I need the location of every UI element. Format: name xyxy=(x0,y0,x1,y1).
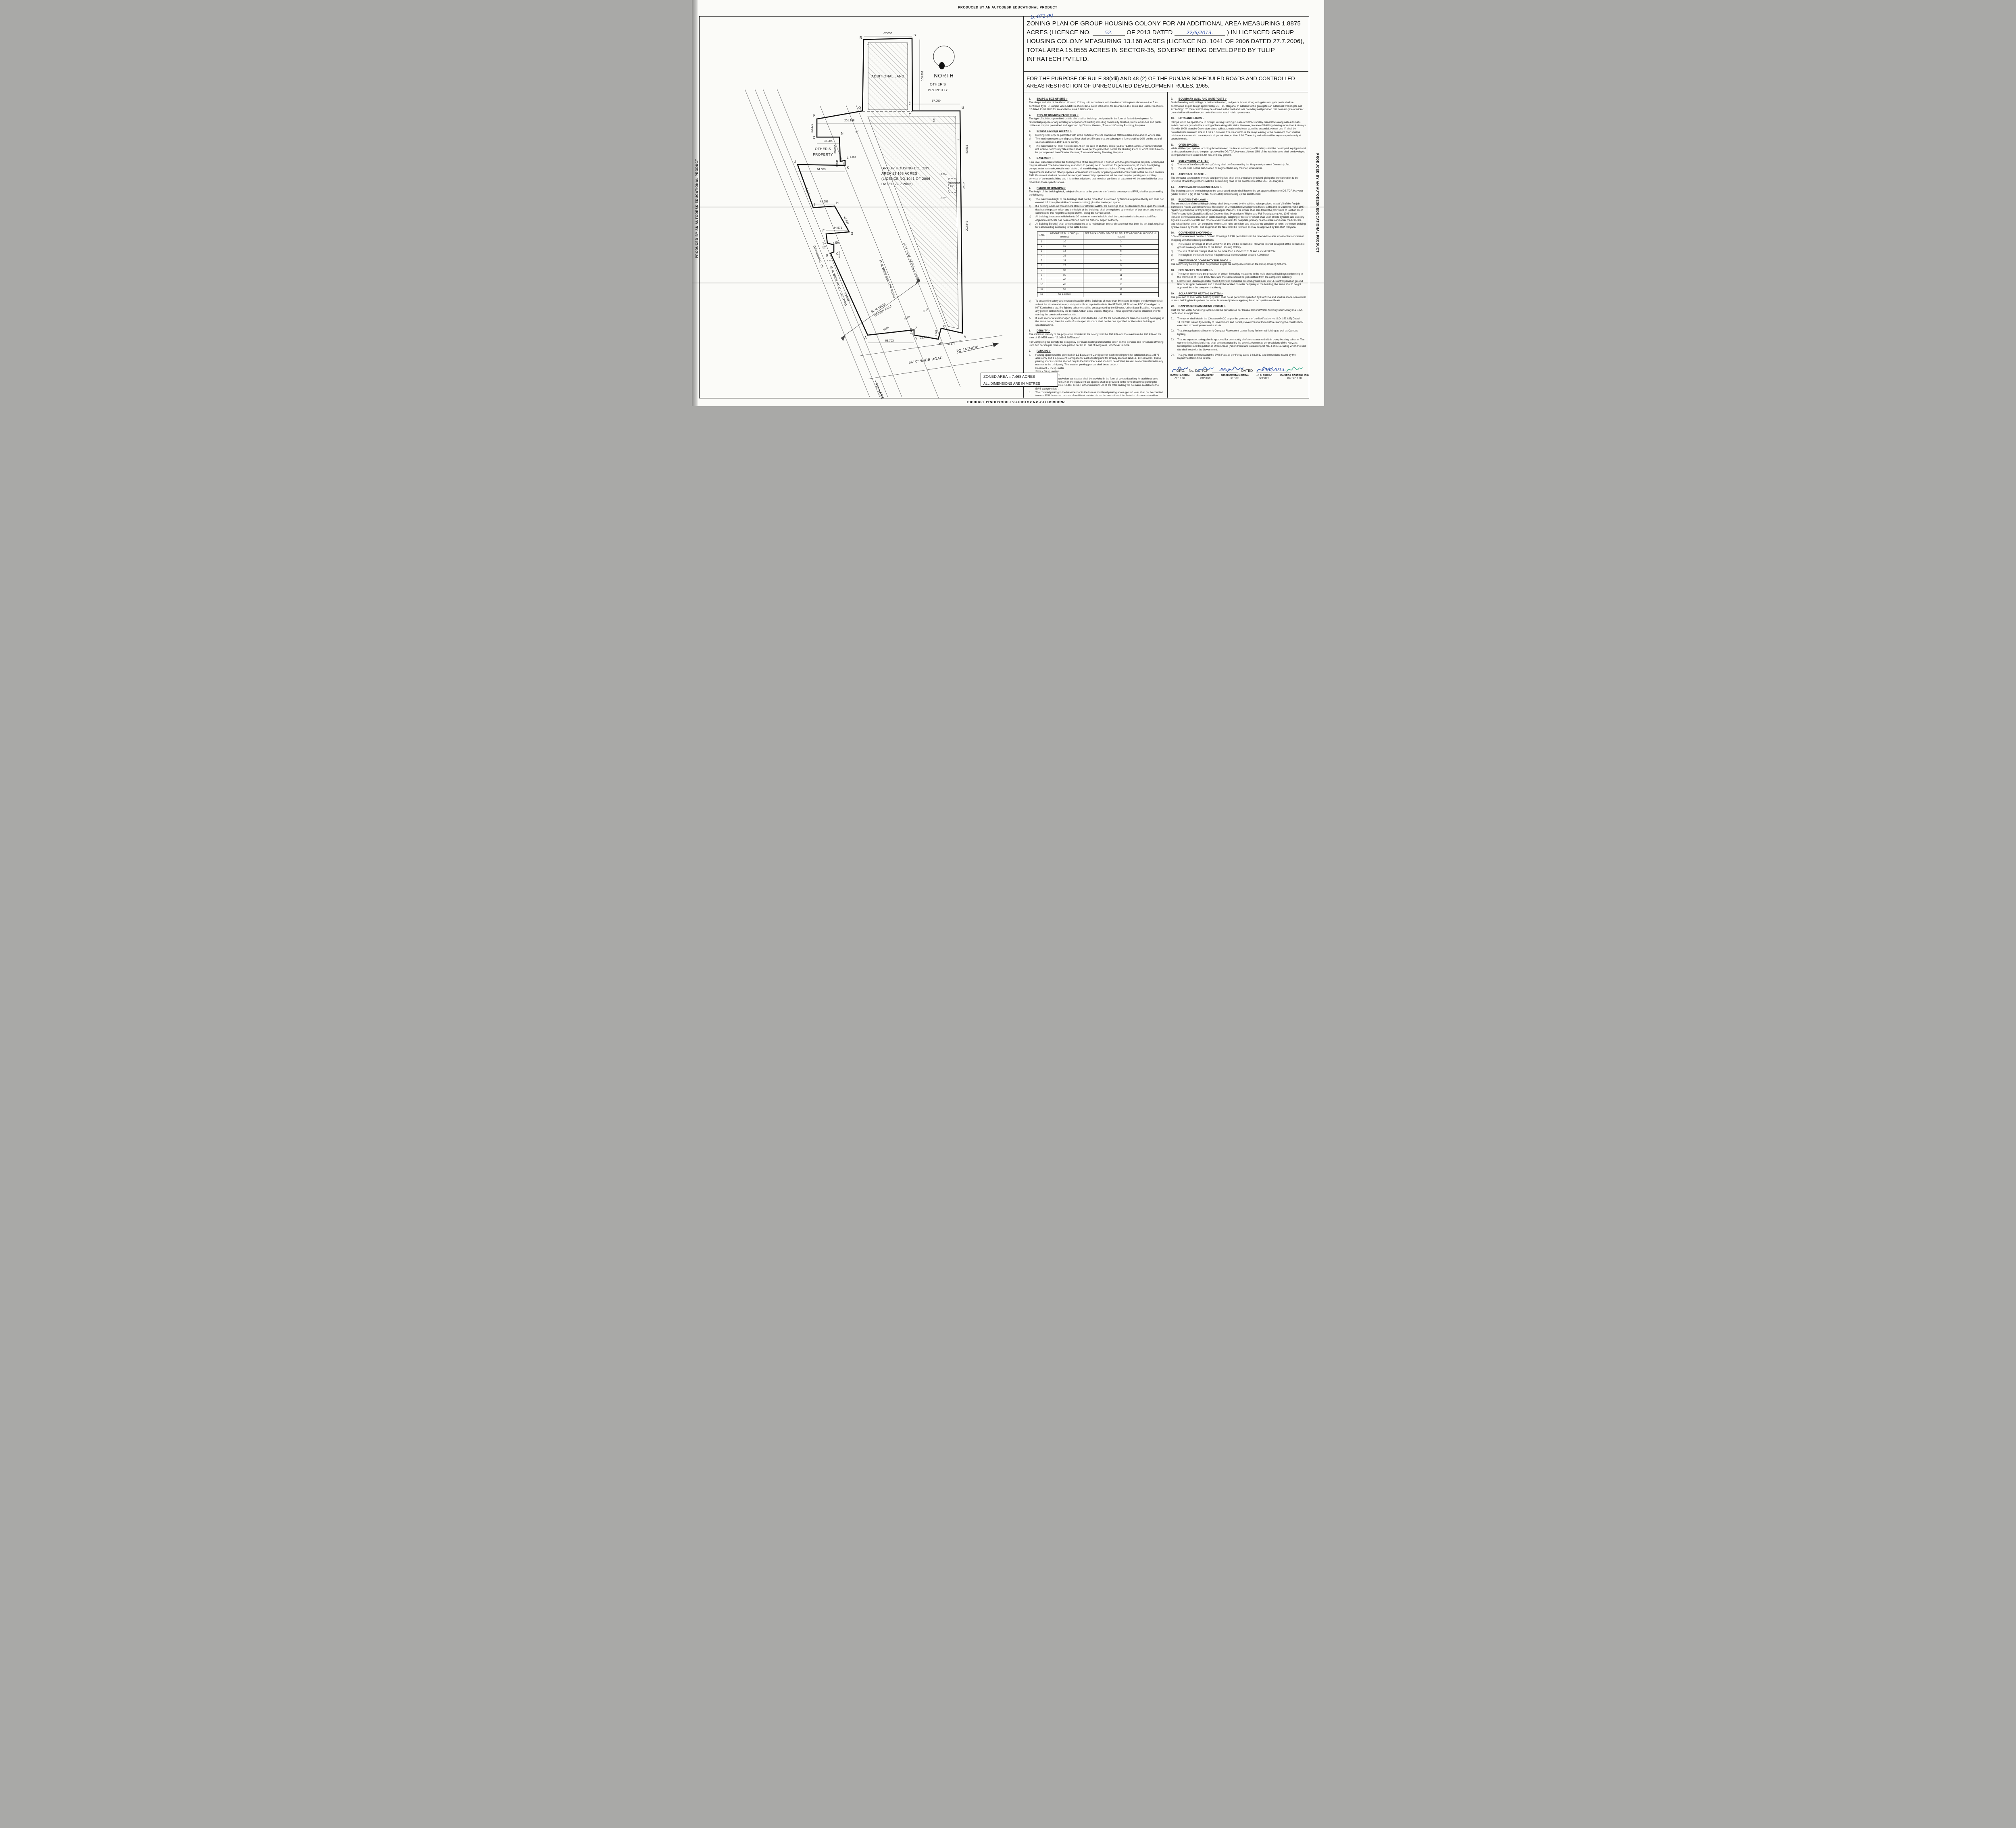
svg-text:Y: Y xyxy=(915,337,918,340)
clause-item-text: If a building abuts on two or more stree… xyxy=(1035,205,1164,215)
clause-heading: 14.APPROVAL OF BUILDING PLANS :- xyxy=(1171,186,1306,189)
svg-text:O: O xyxy=(813,136,815,140)
autodesk-banner-left: PRODUCED BY AN AUTODESK EDUCATIONAL PROD… xyxy=(695,159,699,258)
table-cell: 6 xyxy=(1083,249,1159,254)
table-cell: 21 xyxy=(1046,254,1083,259)
dim-3c: 3.353 xyxy=(827,260,833,262)
table-row: 94012 xyxy=(1037,278,1159,283)
table-row: 6279 xyxy=(1037,264,1159,269)
signature-block: (SUNITA SETHI)DTP (HQ) xyxy=(1196,365,1214,380)
clause-heading: 7.PARKING :- xyxy=(1029,350,1164,353)
clause-heading: 2.TYPE OF BUILDING PERMITTED :- xyxy=(1029,114,1164,117)
additional-land-label: ADDITIONAL LAND xyxy=(871,74,904,78)
clause-number: 5. xyxy=(1029,187,1037,190)
clause-section: 19.SOLAR WATER HEATING SYSTEM :-The prov… xyxy=(1171,292,1306,303)
clause-item: a)Building shall only be permitted with … xyxy=(1029,134,1164,137)
clause-title: RAIN WATER HARVESTING SYSTEM :- xyxy=(1179,305,1226,308)
table-cell: 55 & above xyxy=(1046,292,1083,297)
licence-date-blank: 22/6/2013. xyxy=(1175,29,1225,36)
road-66-label: 66'-0" WIDE ROAD xyxy=(908,356,943,365)
table-cell: 11 xyxy=(1037,288,1046,292)
dim-41: 41.693 xyxy=(820,200,829,203)
clause-section: 22.That the applicant shall use only Com… xyxy=(1171,329,1306,336)
clause-paragraph: The vehicular approach to the site and p… xyxy=(1171,177,1306,183)
svg-text:F: F xyxy=(823,229,825,233)
clause-item-label: a) xyxy=(1029,198,1035,205)
table-row: 115014 xyxy=(1037,288,1159,292)
clause-item-label: a) xyxy=(1171,163,1177,167)
clause-item: 22.That the applicant shall use only Com… xyxy=(1171,329,1306,336)
clause-section: 5.HEIGHT OF BUILDING :-The height of the… xyxy=(1029,187,1164,327)
clause-heading: 1.SHAPE & SIZE OF SITE :- xyxy=(1029,98,1164,101)
clause-title: LIFTS AND RAMPS :- xyxy=(1179,117,1204,120)
clause-item-text: The size of Kiosks / shops shall not be … xyxy=(1177,250,1306,253)
title-separator xyxy=(1023,71,1308,72)
clause-item: b)Electric Sub Station/generator room if… xyxy=(1171,280,1306,290)
dim-6b: 6.0 xyxy=(909,102,911,105)
table-row: 1255 & above16 xyxy=(1037,292,1159,297)
clause-heading: 16.CONVENIENT SHOPPING :- xyxy=(1171,231,1306,235)
clause-number: 1. xyxy=(1029,98,1037,101)
clause-item: b)The maximum coverage of ground floor s… xyxy=(1029,138,1164,144)
svg-text:T: T xyxy=(909,113,911,117)
table-cell: 2 xyxy=(1037,244,1046,249)
road-lines xyxy=(745,89,1002,399)
clause-title: SOLAR WATER HEATING SYSTEM :- xyxy=(1179,292,1223,295)
clause-paragraph: That the rain water harvesting system sh… xyxy=(1171,309,1306,316)
clause-number: 7. xyxy=(1029,350,1037,353)
clause-item-label: b) xyxy=(1171,167,1177,170)
clause-item-label: d) xyxy=(1029,223,1035,229)
signature-icon xyxy=(1256,365,1273,374)
table-cell: 30 xyxy=(1046,269,1083,273)
dim-50-00: 50.00 xyxy=(883,327,889,331)
dim-36: 36.880 xyxy=(834,145,837,154)
clause-title: BUILDING BYE- LAWS :- xyxy=(1179,198,1208,201)
clause-title: DENSITY :- xyxy=(1037,329,1050,332)
clause-item: 21.The owner shall obtain the Clearance/… xyxy=(1171,317,1306,327)
table-header-row: S.No.HEIGHT OF BUILDING (in meters)SET B… xyxy=(1037,232,1159,240)
table-cell: 11 xyxy=(1083,273,1159,278)
clause-item-text: The covered parking in the basement or i… xyxy=(1035,391,1164,396)
autodesk-banner-bottom: PRODUCED BY AN AUTODESK EDUCATIONAL PROD… xyxy=(966,400,1065,404)
table-row: 73010 xyxy=(1037,269,1159,273)
sector-road-label: 45 M WIDE SECTOR ROAD xyxy=(878,259,896,298)
dim-34: 34.976 xyxy=(833,227,842,229)
table-cell: 50 xyxy=(1046,288,1083,292)
clause-heading: 5.HEIGHT OF BUILDING :- xyxy=(1029,187,1164,190)
licence-no-blank: 52. xyxy=(1093,29,1125,36)
clause-title: FIRE SAFETY MEASURES :- xyxy=(1179,269,1213,272)
clause-section: 9.BOUNDARY WALL AND GATE POSTS :-Such Bo… xyxy=(1171,98,1306,115)
dim-38: 38.687 xyxy=(920,336,929,340)
others-property-top-1: OTHER'S xyxy=(930,82,946,86)
table-cell: 12 xyxy=(1037,292,1046,297)
clause-item: e)To ensure fire safety and structural s… xyxy=(1029,300,1164,316)
table-cell: 4 xyxy=(1037,254,1046,259)
table-cell: 9 xyxy=(1037,278,1046,283)
clause-item-label: b) xyxy=(1171,250,1177,253)
to-narela-label: TO NARELA xyxy=(874,383,887,399)
clauses-right: 9.BOUNDARY WALL AND GATE POSTS :-Such Bo… xyxy=(1171,95,1306,396)
others-property-left-2: PROPERTY xyxy=(813,152,833,156)
dim-6d: 6.0 xyxy=(958,139,961,141)
dim-6f: 6.0 xyxy=(855,129,859,133)
clause-title: Ground Coverage and FAR :- xyxy=(1037,130,1072,133)
clause-number: 9. xyxy=(1171,98,1179,101)
svg-text:G: G xyxy=(851,232,853,236)
autodesk-banner-top: PRODUCED BY AN AUTODESK EDUCATIONAL PROD… xyxy=(958,6,1057,9)
svg-text:Z: Z xyxy=(915,326,917,330)
dim-108: 108.891 xyxy=(921,71,924,81)
clause-section: 6.DENSITY :-The minimum density of the p… xyxy=(1029,329,1164,347)
dim-67-2: 67.050 xyxy=(932,100,941,102)
clause-section: 23.That no separate zoning plan is appro… xyxy=(1171,338,1306,352)
clause-paragraph: While all the open spaces including thos… xyxy=(1171,147,1306,157)
additional-land-small-1: ADDITIONAL xyxy=(949,182,961,185)
svg-text:I: I xyxy=(814,203,815,206)
table-cell: 15 xyxy=(1046,244,1083,249)
clause-section: 20.RAIN WATER HARVESTING SYSTEM :-That t… xyxy=(1171,305,1306,315)
table-cell: 14 xyxy=(1083,288,1159,292)
dim-201: 201.168 xyxy=(844,119,854,122)
dim-202: 202.845 xyxy=(966,221,968,231)
clause-title: SHAPE & SIZE OF SITE :- xyxy=(1037,98,1067,100)
clause-section: 12SUB DIVISION OF SITE :-a)The site of t… xyxy=(1171,160,1306,171)
clause-item: b)The size of Kiosks / shops shall not b… xyxy=(1171,250,1306,253)
table-cell: 12 xyxy=(1083,278,1159,283)
table-cell: 7 xyxy=(1037,269,1046,273)
clause-heading: 12SUB DIVISION OF SITE :- xyxy=(1171,160,1306,163)
table-cell: 8 xyxy=(1037,273,1046,278)
clause-number: 2. xyxy=(1029,114,1037,117)
subtitle-separator xyxy=(1023,92,1308,92)
signature-icon xyxy=(1196,365,1214,374)
licence-date-value: 22/6/2013. xyxy=(1186,30,1213,35)
clause-item-text: Electric Sub Station/generator room if p… xyxy=(1177,280,1306,290)
clause-item-label: a) xyxy=(1171,273,1177,279)
others-property-top-2: PROPERTY xyxy=(928,88,948,92)
dim-61: 61.163 xyxy=(804,186,810,196)
clause-number: 13. xyxy=(1171,173,1179,176)
svg-text:H: H xyxy=(836,201,839,205)
table-cell: 6 xyxy=(1037,264,1046,269)
clause-title: APPROVAL OF BUILDING PLANS :- xyxy=(1179,186,1222,189)
clause-paragraph: The type of buildings permitted on this … xyxy=(1029,117,1164,127)
clause-heading: 9.BOUNDARY WALL AND GATE POSTS :- xyxy=(1171,98,1306,101)
clause-section: 16.CONVENIENT SHOPPING :-0.5% of the tot… xyxy=(1171,231,1306,257)
clause-number: 3. xyxy=(1029,130,1037,133)
clause-item: c)The maximum FAR shall not exceed 175 o… xyxy=(1029,145,1164,155)
clause-section: 18.FIRE SAFETY MEASURES :-a)The owner wi… xyxy=(1171,269,1306,290)
clause-section: 3.Ground Coverage and FAR :-a)Building s… xyxy=(1029,130,1164,154)
table-cell: 1 xyxy=(1037,240,1046,245)
clause-item-text: That no separate zoning plan is approved… xyxy=(1177,338,1306,352)
signatures-row: (SATISH ARORA)ATP (HQ)(SUNITA SETHI)DTP … xyxy=(1170,365,1309,380)
table-cell: 13 xyxy=(1083,283,1159,288)
clause-number: 11. xyxy=(1171,144,1179,147)
svg-text:S: S xyxy=(914,33,916,37)
clause-item: a)The site of the Group Housing Colony s… xyxy=(1171,163,1306,167)
svg-text:W: W xyxy=(939,342,942,345)
signature-designation: ATP (HQ) xyxy=(1175,377,1185,380)
signature-designation: DTP (HQ) xyxy=(1200,377,1210,380)
clause-title: OPEN SPACES :- xyxy=(1179,144,1199,146)
svg-text:B: B xyxy=(826,254,828,257)
svg-text:X: X xyxy=(943,325,945,328)
clause-number: 20. xyxy=(1171,305,1179,308)
svg-text:K: K xyxy=(847,166,849,169)
drawing-title: ZONING PLAN OF GROUP HOUSING COLONY FOR … xyxy=(1027,19,1308,64)
clause-item-text: If such interior or exterior open space … xyxy=(1035,317,1164,327)
clause-item-label: e) xyxy=(1029,300,1035,316)
clause-number: 4. xyxy=(1029,157,1037,160)
signature-designation: CTP,(HR) xyxy=(1259,377,1269,380)
scanned-zoning-plan-page: PRODUCED BY AN AUTODESK EDUCATIONAL PROD… xyxy=(692,0,1324,406)
clause-number: 14. xyxy=(1171,186,1179,189)
clause-item-text: That the applicant shall use only Compac… xyxy=(1177,329,1306,336)
dim-64: 64.553 xyxy=(817,168,826,171)
clause-item-label: a) xyxy=(1029,134,1035,137)
clause-number: 17 xyxy=(1171,259,1179,263)
clause-item: c)All building /structures which rise to… xyxy=(1029,215,1164,222)
clause-item-text: The maximum FAR shall not exceed 175 on … xyxy=(1035,145,1164,155)
clause-heading: 15.BUILDING BYE- LAWS :- xyxy=(1171,198,1306,202)
additional-land-small-2: LAND xyxy=(949,186,954,188)
signature-block: (MADHUSMITA MOITRA)STP,(M) xyxy=(1221,365,1248,380)
svg-text:Q: Q xyxy=(858,106,861,110)
clause-heading: 20.RAIN WATER HARVESTING SYSTEM :- xyxy=(1171,305,1306,308)
clause-title: PROVISION OF COMMUNITY BUILDINGS :- xyxy=(1179,259,1231,262)
clause-item-text: The height of the kiosks / shops / depar… xyxy=(1177,254,1306,257)
clause-section: 17PROVISION OF COMMUNITY BUILDINGS :-The… xyxy=(1171,259,1306,267)
dim-63: 63.703 xyxy=(885,340,894,342)
dim-6a: 6.0 xyxy=(867,42,869,45)
svg-text:J: J xyxy=(794,160,796,164)
dim-20: 20.117 xyxy=(963,182,965,189)
clause-paragraph: Four level Basements within the building… xyxy=(1029,161,1164,184)
svg-text:N: N xyxy=(841,132,843,135)
clause-heading: 18.FIRE SAFETY MEASURES :- xyxy=(1171,269,1306,272)
signature-designation: DG,TCP (HR) xyxy=(1287,377,1302,380)
clauses-left: 1.SHAPE & SIZE OF SITE :-The shape and s… xyxy=(1029,95,1164,396)
clause-number: 19. xyxy=(1171,292,1179,296)
dim-9-9: 9.969 xyxy=(935,330,938,336)
table-row: 104513 xyxy=(1037,283,1159,288)
clause-item-label: b) xyxy=(1029,138,1035,144)
clause-section: 1.SHAPE & SIZE OF SITE :-The shape and s… xyxy=(1029,98,1164,111)
dim-10: 10.058 xyxy=(839,251,841,258)
clause-heading: 3.Ground Coverage and FAR :- xyxy=(1029,130,1164,133)
dim-16b: 16.764 xyxy=(939,197,947,199)
clause-number: 6. xyxy=(1029,329,1037,333)
signature-designation: STP,(M) xyxy=(1231,377,1239,380)
clause-item: 23.That no separate zoning plan is appro… xyxy=(1171,338,1306,352)
clause-item-label: 23. xyxy=(1171,338,1177,352)
clause-item-text: The maximum coverage of ground floor sha… xyxy=(1035,138,1164,144)
clause-item: a)The owner will ensure the provision of… xyxy=(1171,273,1306,279)
clause-item-label: c) xyxy=(1171,254,1177,257)
dim-6c: 6.0 xyxy=(933,119,935,122)
clause-paragraph: The shape and size of the Group Housing … xyxy=(1029,101,1164,111)
dim-43: 43.539 xyxy=(843,216,849,225)
clause-item-label: c. xyxy=(1029,391,1035,396)
svg-text:(LICENCE NO.1041 OF 2006: (LICENCE NO.1041 OF 2006 xyxy=(881,177,930,181)
table-cell: 24 xyxy=(1046,259,1083,264)
signature-name: (J. S. REDHU) xyxy=(1256,374,1272,377)
clause-title: TYPE OF BUILDING PERMITTED :- xyxy=(1037,114,1079,117)
table-row: 1103 xyxy=(1037,240,1159,245)
clause-number: 18. xyxy=(1171,269,1179,272)
table-cell: 10 xyxy=(1083,269,1159,273)
to-jatheri-label: TO JATHERI xyxy=(956,345,979,353)
clause-item-label: 22. xyxy=(1171,329,1177,336)
table-cell: 5 xyxy=(1037,259,1046,264)
clause-paragraph: The height of the building block, subjec… xyxy=(1029,190,1164,197)
dim-45-00: 45.00 xyxy=(904,316,910,321)
svg-text:GROUP HOUSING COLONY: GROUP HOUSING COLONY xyxy=(881,166,929,170)
table-cell: 35 xyxy=(1046,273,1083,278)
clause-item-text: All Building Block(s) shall be construct… xyxy=(1035,223,1164,229)
clause-number: 16. xyxy=(1171,231,1179,235)
clause-item: b)If a building abuts on two or more str… xyxy=(1029,205,1164,215)
clause-item: c)The height of the kiosks / shops / dep… xyxy=(1171,254,1306,257)
clause-heading: 11.OPEN SPACES :- xyxy=(1171,144,1306,147)
others-property-left-1: OTHER'S xyxy=(815,147,831,151)
dim-23: 23.470 xyxy=(811,124,814,133)
table-cell: 5 xyxy=(1083,244,1159,249)
dim-83: 83.819 xyxy=(966,145,968,154)
signature-block: (J. S. REDHU)CTP,(HR) xyxy=(1256,365,1273,380)
clause-number: 10. xyxy=(1171,117,1179,120)
clause-item-label: c) xyxy=(1029,215,1035,222)
svg-text:C: C xyxy=(836,252,839,256)
table-cell: 40 xyxy=(1046,278,1083,283)
table-row: 5248 xyxy=(1037,259,1159,264)
clause-item-text: The site of the Group Housing Colony sha… xyxy=(1177,163,1306,167)
clause-paragraph: The minimum density of the population pr… xyxy=(1029,333,1164,340)
signature-block: (ANURAG RASTOGI, IAS)DG,TCP (HR) xyxy=(1280,365,1309,380)
clause-item-text: The Ground coverage of 100% with FAR of … xyxy=(1177,243,1306,250)
table-row: 2155 xyxy=(1037,244,1159,249)
dim-6e: 6.0 xyxy=(959,272,962,274)
buildable-zone-hatch-main xyxy=(868,116,958,329)
clause-section: 2.TYPE OF BUILDING PERMITTED :-The type … xyxy=(1029,114,1164,127)
clause-paragraph: The construction of the building/buildin… xyxy=(1171,202,1306,229)
signature-icon xyxy=(1285,365,1303,374)
clause-title: SUB DIVISION OF SITE :- xyxy=(1179,160,1209,163)
clause-section: 4.BASEMENT :-Four level Basements within… xyxy=(1029,157,1164,184)
table-header-cell: SET BACK / OPEN SPACE TO BE LEFT AROUND … xyxy=(1083,232,1159,240)
clause-number: 12 xyxy=(1171,160,1179,163)
table-row: 4217 xyxy=(1037,254,1159,259)
clause-item-text: That you shall construct/allot the EWS F… xyxy=(1177,354,1306,361)
clause-heading: 6.DENSITY :- xyxy=(1029,329,1164,333)
clause-section: 15.BUILDING BYE- LAWS :-The construction… xyxy=(1171,198,1306,229)
north-symbol: NORTH xyxy=(933,46,954,79)
dim-3a: 3.353 xyxy=(850,156,856,158)
clause-title: CONVENIENT SHOPPING :- xyxy=(1179,231,1212,234)
signature-name: (SUNITA SETHI) xyxy=(1196,374,1214,377)
clause-item-label: c) xyxy=(1029,145,1035,155)
clause-item: f)If such interior or exterior open spac… xyxy=(1029,317,1164,327)
clause-section: 24.That you shall construct/allot the EW… xyxy=(1171,354,1306,361)
clause-heading: 13.APPROACH TO SITE :- xyxy=(1171,173,1306,176)
svg-text:A: A xyxy=(864,336,867,340)
table-row: 3186 xyxy=(1037,249,1159,254)
svg-text:L: L xyxy=(847,156,849,160)
table-row: 83511 xyxy=(1037,273,1159,278)
clause-item-label: b) xyxy=(1171,280,1177,290)
clause-heading: 17PROVISION OF COMMUNITY BUILDINGS :- xyxy=(1171,259,1306,263)
clause-paragraph: The provision of solar water heating sys… xyxy=(1171,296,1306,303)
column-divider xyxy=(1167,92,1168,398)
clause-heading: 4.BASEMENT :- xyxy=(1029,157,1164,160)
clause-item-label: b) xyxy=(1029,205,1035,215)
table-header-cell: HEIGHT OF BUILDING (in meters) xyxy=(1046,232,1083,240)
svg-text:P: P xyxy=(813,114,815,118)
clause-item-text: The site shall not be sub-divided or fra… xyxy=(1177,167,1306,170)
clause-section: 10.LIFTS AND RAMPS :-Ramps would be oper… xyxy=(1171,117,1306,141)
clause-item-text: Building shall only be permitted with in… xyxy=(1035,134,1164,137)
setback-table: S.No.HEIGHT OF BUILDING (in meters)SET B… xyxy=(1037,231,1159,297)
clause-title: PARKING :- xyxy=(1037,350,1051,352)
clause-paragraph: Such Boundary wall, railings or their co… xyxy=(1171,101,1306,115)
north-label: NORTH xyxy=(934,73,954,79)
clause-item: b)The site shall not be sub-divided or f… xyxy=(1171,167,1306,170)
green-belt-arrow xyxy=(841,278,920,341)
clause-item: 24.That you shall construct/allot the EW… xyxy=(1171,354,1306,361)
clause-paragraph: 0.5% of the total area on which Ground C… xyxy=(1171,235,1306,242)
dim-30: 30.175 xyxy=(946,342,955,346)
frame-divider-plan-text xyxy=(1023,16,1024,398)
svg-text:DATED 27.7.2006): DATED 27.7.2006) xyxy=(881,182,913,186)
clause-item: d)All Building Block(s) shall be constru… xyxy=(1029,223,1164,229)
table-header-cell: S.No. xyxy=(1037,232,1046,240)
table-cell: 3 xyxy=(1083,240,1159,245)
clause-item-text: The owner shall obtain the Clearance/NOC… xyxy=(1177,317,1306,327)
table-cell: 18 xyxy=(1046,249,1083,254)
clause-section: 13.APPROACH TO SITE :-The vehicular appr… xyxy=(1171,173,1306,183)
clause-item: a)The maximum height of the buildings sh… xyxy=(1029,198,1164,205)
clause-title: HEIGHT OF BUILDING :- xyxy=(1037,187,1066,190)
table-cell: 3 xyxy=(1037,249,1046,254)
clause-number: 15. xyxy=(1171,198,1179,202)
clause-heading: 19.SOLAR WATER HEATING SYSTEM :- xyxy=(1171,292,1306,296)
clause-item: a)The Ground coverage of 100% with FAR o… xyxy=(1171,243,1306,250)
dim-67-top: 67.050 xyxy=(883,32,892,35)
svg-text:E: E xyxy=(823,246,825,249)
clause-item: c.The covered parking in the basement or… xyxy=(1029,391,1164,396)
table-cell: 9 xyxy=(1083,264,1159,269)
signature-block: (SATISH ARORA)ATP (HQ) xyxy=(1170,365,1189,380)
clause-paragraph: For Computing the density the occupancy … xyxy=(1029,341,1164,348)
table-cell: 27 xyxy=(1046,264,1083,269)
table-cell: 16 xyxy=(1083,292,1159,297)
clause-section: 11.OPEN SPACES :-While all the open spac… xyxy=(1171,144,1306,157)
signature-name: (ANURAG RASTOGI, IAS) xyxy=(1280,374,1309,377)
signature-name: (MADHUSMITA MOITRA) xyxy=(1221,374,1248,377)
clause-item-text: The maximum height of the buildings shal… xyxy=(1035,198,1164,205)
signature-name: (SATISH ARORA) xyxy=(1170,374,1189,377)
clause-title: BASEMENT :- xyxy=(1037,157,1054,160)
clause-item-text: The owner will ensure the provision of p… xyxy=(1177,273,1306,279)
clause-title: BOUNDARY WALL AND GATE POSTS :- xyxy=(1179,98,1227,100)
clause-paragraph: The building plans of the buildings to b… xyxy=(1171,190,1306,196)
table-cell: 7 xyxy=(1083,254,1159,259)
signature-icon xyxy=(1171,365,1189,374)
table-cell: 10 xyxy=(1046,240,1083,245)
